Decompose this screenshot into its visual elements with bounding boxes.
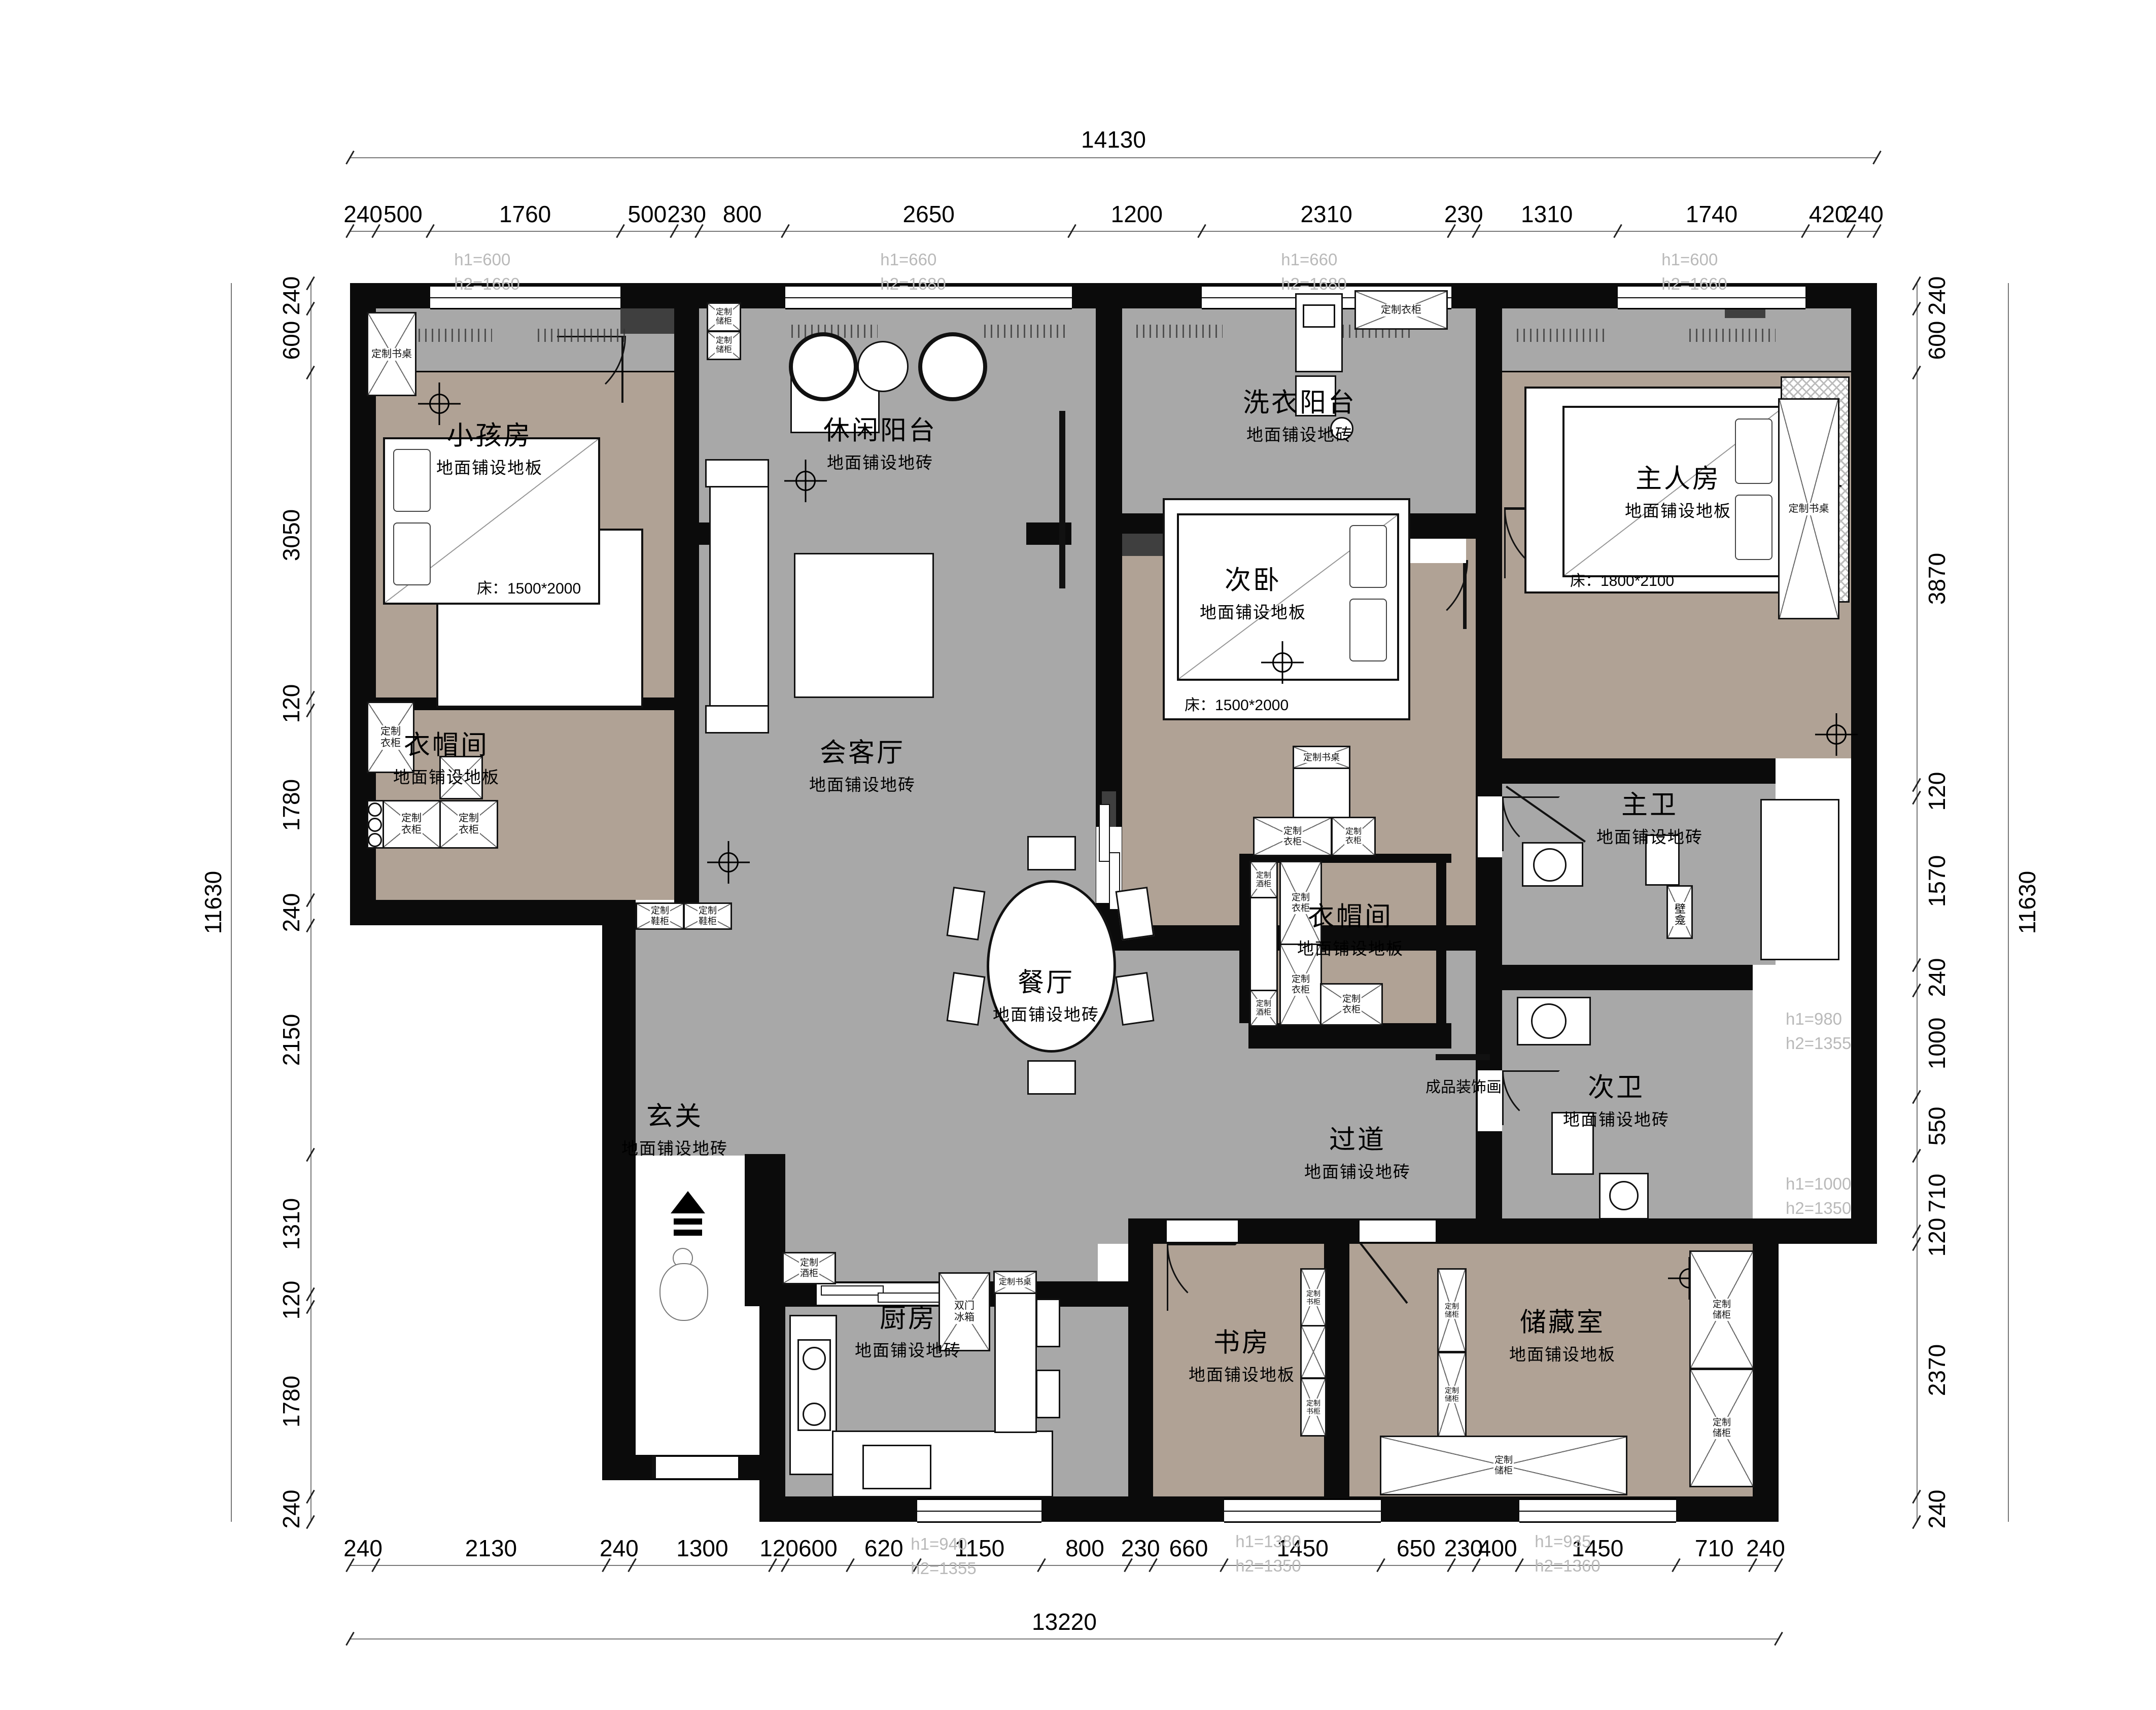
burner-2 <box>803 1403 826 1426</box>
dining-chair-e0 <box>1115 887 1154 940</box>
artwork-frame <box>1436 1054 1490 1060</box>
cabinet-unlabeled-book <box>1300 1325 1327 1379</box>
room-name-cloak1: 衣帽间 <box>393 724 500 762</box>
cabinet-label-c17: 定制衣柜 <box>1380 304 1422 317</box>
room-floor-leisure: 地面铺设地砖 <box>823 449 937 474</box>
cloak1-knob-0 <box>368 802 382 817</box>
dim-line-left-total <box>231 283 232 1522</box>
cabinet-c24: 定制 储柜 <box>1437 1352 1467 1437</box>
sink-kitchen <box>862 1445 931 1489</box>
door-gap-storage <box>1360 1220 1436 1242</box>
room-name-laundry: 洗衣阳台 <box>1243 381 1357 420</box>
dim-right-seg-5: 240 <box>1923 958 1951 997</box>
window-annotation-win_study: h1=1380h2=1350 <box>1235 1529 1301 1578</box>
ann-h1-win_leisure: h1=660 <box>880 248 946 272</box>
cabinet-c10: 定制 酒柜 <box>1249 861 1278 898</box>
radiator-symbol-4 <box>1136 325 1223 338</box>
dim-right-seg-7: 550 <box>1923 1107 1951 1146</box>
room-label-bed2: 次卧地面铺设地板 <box>1200 559 1306 623</box>
burner-1 <box>803 1347 826 1370</box>
ann-h2-win_child: h2=1660 <box>454 272 519 296</box>
dim-top-seg-12: 420 <box>1809 200 1848 228</box>
room-name-bed2: 次卧 <box>1200 559 1306 597</box>
dim-bottom-seg-14: 400 <box>1478 1534 1517 1562</box>
window-annotation-win_leisure: h1=660h2=1680 <box>880 248 946 296</box>
room-floor-kitchen: 地面铺设地砖 <box>855 1337 961 1362</box>
room-label-leisure: 休闲阳台地面铺设地砖 <box>823 409 937 474</box>
ann-h1-win_master: h1=600 <box>1661 248 1727 272</box>
cabinet-c3: 定制 储柜 <box>707 331 741 360</box>
cabinet-label-c5: 定制 衣柜 <box>400 812 423 836</box>
dim-top-seg-10: 1310 <box>1521 200 1573 228</box>
cabinet-c20: 定制书桌 <box>993 1271 1037 1294</box>
crosshair-symbol-6 <box>791 467 820 495</box>
cabinet-c1: 定制书桌 <box>367 312 416 396</box>
wall-kitchen-west <box>759 1306 785 1522</box>
wall-cloak1-bottom <box>350 900 636 925</box>
cabinet-label-c1: 定制书桌 <box>370 348 413 361</box>
dim-right-seg-4: 1570 <box>1923 855 1951 907</box>
dim-left-seg-6: 2150 <box>277 1014 305 1066</box>
dim-top-seg-4: 230 <box>667 200 706 228</box>
wall-right-lower <box>1753 1218 1779 1522</box>
dim-top-seg-11: 1740 <box>1686 200 1737 228</box>
dim-line-bottom-total <box>350 1638 1779 1639</box>
wall-master-south <box>1502 758 1776 784</box>
cloak1-knob-2 <box>368 833 382 847</box>
window-annotation-win_bath1: h1=980h2=1355 <box>1786 1007 1851 1056</box>
cabinet-c8: 定制 鞋柜 <box>683 902 732 930</box>
crosshair-symbol-2 <box>1268 648 1297 677</box>
cabinet-label-c16: 定制 衣柜 <box>1344 827 1363 847</box>
leisure-chair-2 <box>918 332 987 401</box>
dim-left-seg-10: 240 <box>277 1489 305 1528</box>
cabinet-c23: 定制 储柜 <box>1437 1268 1467 1352</box>
window-annotation-win_master: h1=600h2=1660 <box>1661 248 1727 296</box>
pillow-master-1 <box>1735 418 1772 484</box>
leisure-chair-1 <box>789 332 858 401</box>
cabinet-label-c13: 定制 衣柜 <box>1291 973 1311 995</box>
room-label-study: 书房地面铺设地板 <box>1189 1321 1295 1386</box>
room-name-bath2: 次卫 <box>1563 1066 1670 1104</box>
room-floor-master: 地面铺设地板 <box>1625 498 1731 522</box>
dim-bottom-seg-10: 660 <box>1169 1534 1208 1562</box>
dim-left-seg-9: 1780 <box>277 1376 305 1427</box>
dim-bottom-seg-4: 120 <box>759 1534 798 1562</box>
dining-chair-w0 <box>946 887 985 940</box>
radiator-symbol-7 <box>1689 329 1776 342</box>
floor-plan-canvas: 定制书桌定制 储柜定制 储柜定制 衣柜定制 衣柜定制 衣柜定制 鞋柜定制 鞋柜定… <box>0 0 2156 1710</box>
dim-left-total: 11630 <box>199 871 227 934</box>
door-leaf-bed2 <box>1463 560 1465 629</box>
dim-right-seg-6: 1000 <box>1923 1018 1951 1069</box>
dim-top-seg-2: 1760 <box>499 200 551 228</box>
chair-study-2 <box>1036 1370 1060 1418</box>
room-floor-dining: 地面铺设地砖 <box>993 1001 1099 1026</box>
bed-size-note-master: 床：1800*2100 <box>1570 568 1674 590</box>
dim-bottom-seg-12: 650 <box>1397 1534 1436 1562</box>
cabinet-label-c6: 定制 衣柜 <box>458 812 480 836</box>
room-floor-corridor: 地面铺设地砖 <box>1304 1159 1411 1183</box>
wall-right-upper <box>1851 283 1877 1244</box>
win-kitchen <box>917 1498 1041 1523</box>
dim-top-seg-0: 240 <box>343 200 382 228</box>
door-gap-study <box>1167 1220 1238 1242</box>
cabinet-label-c24: 定制 储柜 <box>1444 1386 1460 1403</box>
cabinet-c18: 定制书桌 <box>1293 746 1350 769</box>
dim-top-seg-3: 500 <box>628 200 667 228</box>
cabinet-c15: 定制 衣柜 <box>1253 817 1332 856</box>
dim-bottom-seg-5: 600 <box>798 1534 838 1562</box>
cabinet-label-c26: 定制 储柜 <box>1712 1417 1732 1439</box>
room-label-cloak2: 衣帽间地面铺设地板 <box>1297 895 1404 960</box>
wall-cloak2-south <box>1248 1023 1451 1049</box>
dim-right-seg-10: 2370 <box>1923 1344 1951 1396</box>
cabinet-label-c14: 定制 衣柜 <box>1341 993 1362 1015</box>
room-label-master: 主人房地面铺设地板 <box>1625 458 1731 522</box>
window-annotation-win_bath2: h1=1000h2=1350 <box>1786 1172 1851 1220</box>
dim-top-seg-5: 800 <box>723 200 762 228</box>
wall-child-east <box>674 283 699 925</box>
chair-study-1 <box>1036 1299 1060 1347</box>
pillow-master-2 <box>1735 495 1772 560</box>
person-figure-entry <box>659 1248 706 1319</box>
tv-living <box>1059 411 1065 588</box>
cabinet-label-c3: 定制 储柜 <box>715 336 733 356</box>
coffee-table-living <box>794 553 934 698</box>
ann-h1-win_child: h1=600 <box>454 248 519 272</box>
room-name-storage: 储藏室 <box>1509 1301 1616 1339</box>
cabinet-c27: 定制 储柜 <box>1380 1436 1627 1495</box>
ann-h2-win_study: h2=1350 <box>1235 1554 1301 1578</box>
room-floor-cloak2: 地面铺设地板 <box>1297 935 1404 960</box>
dim-line-top-total <box>350 157 1877 158</box>
room-floor-child: 地面铺设地板 <box>436 455 543 479</box>
dim-bottom-seg-8: 800 <box>1065 1534 1104 1562</box>
cabinet-label-c27: 定制 储柜 <box>1493 1454 1514 1476</box>
room-name-child: 小孩房 <box>436 414 543 452</box>
cabinet-c19: 定制书桌 <box>1778 398 1839 619</box>
room-label-bath2: 次卫地面铺设地砖 <box>1563 1066 1670 1131</box>
entry-arrow-bar2 <box>674 1230 702 1236</box>
dim-bottom-seg-17: 240 <box>1746 1534 1785 1562</box>
room-floor-laundry: 地面铺设地砖 <box>1243 422 1357 446</box>
crosshair-symbol-4 <box>1822 720 1851 749</box>
dim-top-seg-7: 1200 <box>1111 200 1163 228</box>
window-annotation-win_laundry: h1=660h2=1680 <box>1281 248 1346 296</box>
pillow-child-2 <box>393 522 431 585</box>
cabinet-c2: 定制 储柜 <box>707 302 741 332</box>
dim-left-seg-0: 240 <box>277 276 305 316</box>
wall-kitchen-study <box>1128 1244 1153 1522</box>
room-label-cloak1: 衣帽间地面铺设地板 <box>393 724 500 788</box>
dim-bottom-seg-3: 1300 <box>676 1534 728 1562</box>
room-label-child: 小孩房地面铺设地板 <box>436 414 543 479</box>
cabinet-label-c19: 定制书桌 <box>1788 503 1830 515</box>
wall-bath1-south <box>1502 965 1753 990</box>
cabinet-label-c8: 定制 鞋柜 <box>698 905 718 927</box>
cabinet-c9: 定制 酒柜 <box>782 1252 836 1284</box>
dim-top-total: 14130 <box>1081 126 1146 153</box>
room-floor-hall: 地面铺设地砖 <box>621 1135 728 1160</box>
dim-right-seg-8: 710 <box>1923 1174 1951 1213</box>
pillow-bed2-2 <box>1349 599 1387 661</box>
entry-direction-arrow <box>671 1191 705 1213</box>
dining-chair-n <box>1027 836 1076 870</box>
sofa-living <box>709 482 769 708</box>
dim-right-seg-0: 240 <box>1923 276 1951 316</box>
sink-bowl-bath2 <box>1531 1003 1567 1039</box>
ann-h2-win_kitchen: h2=1355 <box>911 1556 976 1581</box>
door-leaf-child <box>621 336 623 403</box>
wall-hall-west <box>602 900 636 1480</box>
cabinet-label-c20: 定制书桌 <box>998 1277 1032 1287</box>
room-name-corridor: 过道 <box>1304 1119 1411 1157</box>
dim-left-seg-4: 1780 <box>277 779 305 831</box>
dim-line-right-segments <box>1917 283 1918 1522</box>
window-annotation-win_kitchen: h1=940h2=1355 <box>911 1532 976 1581</box>
cloak1-knob-1 <box>368 818 382 832</box>
ann-h2-win_laundry: h2=1680 <box>1281 272 1346 296</box>
cabinet-c21: 定制 书柜 <box>1300 1268 1327 1327</box>
crosshair-symbol-1 <box>714 848 743 877</box>
dim-bottom-seg-16: 710 <box>1695 1534 1734 1562</box>
cabinet-c6: 定制 衣柜 <box>439 800 498 849</box>
ann-h1-win_bath2: h1=1000 <box>1786 1172 1851 1196</box>
sink-bowl-bath1 <box>1533 848 1567 882</box>
bathtub-bath1 <box>1760 799 1839 960</box>
cabinet-c7: 定制 鞋柜 <box>636 902 684 930</box>
dim-line-right-total <box>2008 283 2009 1522</box>
dim-bottom-seg-1: 2130 <box>465 1534 517 1562</box>
entry-arrow-bar1 <box>674 1218 702 1225</box>
ann-h1-win_bath1: h1=980 <box>1786 1007 1851 1031</box>
room-floor-cloak1: 地面铺设地板 <box>393 764 500 788</box>
dim-left-seg-5: 240 <box>277 893 305 932</box>
dim-bottom-seg-0: 240 <box>343 1534 382 1562</box>
room-floor-bath1: 地面铺设地砖 <box>1596 824 1703 848</box>
cabinet-label-c15: 定制 衣柜 <box>1282 825 1303 847</box>
cabinet-c14: 定制 衣柜 <box>1320 983 1383 1026</box>
room-name-cloak2: 衣帽间 <box>1297 895 1404 933</box>
cabinet-c16: 定制 衣柜 <box>1331 817 1376 856</box>
room-floor-living: 地面铺设地砖 <box>809 772 916 796</box>
dim-left-seg-7: 1310 <box>277 1198 305 1250</box>
dim-right-seg-1: 600 <box>1923 321 1951 360</box>
artwork-label: 成品装饰画 <box>1425 1074 1502 1097</box>
door-gap-entry <box>652 1457 738 1478</box>
slider-kitchen-1 <box>821 1285 884 1296</box>
ann-h1-win_storage: h1=935 <box>1535 1529 1600 1554</box>
radiator-symbol-1 <box>538 329 629 342</box>
dim-top-seg-9: 230 <box>1444 200 1483 228</box>
sofa-side-table-1 <box>705 459 769 487</box>
room-label-living: 会客厅地面铺设地砖 <box>809 731 916 796</box>
ann-h2-win_storage: h2=1360 <box>1535 1554 1600 1578</box>
cabinet-c25: 定制 储柜 <box>1689 1250 1754 1369</box>
dim-left-seg-2: 3050 <box>277 509 305 561</box>
dining-chair-s <box>1027 1060 1076 1095</box>
room-name-living: 会客厅 <box>809 731 916 770</box>
pillow-bed2-1 <box>1349 525 1387 588</box>
washer-drum-bath2 <box>1609 1181 1639 1210</box>
sofa-side-table-2 <box>705 705 769 734</box>
room-label-hall: 玄关地面铺设地砖 <box>621 1095 728 1160</box>
ann-h2-win_bath2: h2=1350 <box>1786 1196 1851 1220</box>
dining-chair-w1 <box>946 972 985 1026</box>
cabinet-c11: 定制 酒柜 <box>1249 989 1278 1027</box>
cloak2-shelf <box>1249 897 1278 991</box>
cabinet-c26: 定制 储柜 <box>1689 1369 1754 1487</box>
dim-left-seg-1: 600 <box>277 321 305 360</box>
cabinet-label-c25: 定制 储柜 <box>1712 1299 1732 1320</box>
cabinet-label-c23: 定制 储柜 <box>1444 1302 1460 1319</box>
door-gap-bath1 <box>1478 796 1502 857</box>
dim-bottom-seg-2: 240 <box>600 1534 639 1562</box>
cabinet-label-c2: 定制 储柜 <box>715 307 733 327</box>
room-label-kitchen: 厨房地面铺设地砖 <box>855 1297 961 1362</box>
entry-jamb <box>652 1455 656 1478</box>
room-label-laundry: 洗衣阳台地面铺设地砖 <box>1243 381 1357 446</box>
room-name-dining: 餐厅 <box>993 961 1099 999</box>
win-study <box>1224 1498 1381 1523</box>
cabinet-label-c10: 定制 酒柜 <box>1255 870 1272 889</box>
room-name-kitchen: 厨房 <box>855 1297 961 1335</box>
ann-h1-win_kitchen: h1=940 <box>911 1532 976 1556</box>
room-label-dining: 餐厅地面铺设地砖 <box>993 961 1099 1026</box>
dim-left-seg-3: 120 <box>277 684 305 723</box>
ann-h1-win_laundry: h1=660 <box>1281 248 1346 272</box>
dim-left-seg-8: 120 <box>277 1281 305 1320</box>
ann-h2-win_bath1: h2=1355 <box>1786 1031 1851 1056</box>
wall-cloak2-east <box>1436 854 1446 1023</box>
dim-bottom-seg-6: 620 <box>864 1534 903 1562</box>
dim-top-seg-1: 500 <box>384 200 423 228</box>
cabinet-c17: 定制衣柜 <box>1354 290 1448 330</box>
ann-h2-win_master: h2=1660 <box>1661 272 1727 296</box>
wall-hall-step <box>745 1154 785 1306</box>
cabinet-c5: 定制 衣柜 <box>382 800 441 849</box>
dim-right-seg-11: 240 <box>1923 1489 1951 1528</box>
room-name-master: 主人房 <box>1625 458 1731 496</box>
cabinet-label-c18: 定制书桌 <box>1302 752 1341 763</box>
dim-right-seg-9: 120 <box>1923 1218 1951 1257</box>
ann-h2-win_leisure: h2=1680 <box>880 272 946 296</box>
room-name-study: 书房 <box>1189 1321 1295 1359</box>
sill-master-bay <box>1502 371 1851 372</box>
cabinet-label-c7: 定制 鞋柜 <box>650 905 670 927</box>
room-floor-storage: 地面铺设地板 <box>1509 1341 1616 1366</box>
dim-right-total: 11630 <box>2013 871 2041 934</box>
win-storage <box>1519 1498 1676 1523</box>
dim-right-seg-2: 3870 <box>1923 553 1951 605</box>
window-annotation-win_storage: h1=935h2=1360 <box>1535 1529 1600 1578</box>
room-label-storage: 储藏室地面铺设地板 <box>1509 1301 1616 1366</box>
ann-h1-win_study: h1=1380 <box>1235 1529 1301 1554</box>
dim-top-seg-13: 240 <box>1845 200 1884 228</box>
cabinet-label-c22: 定制 书柜 <box>1305 1399 1322 1416</box>
cabinet-label-c21: 定制 书柜 <box>1305 1289 1322 1306</box>
dim-bottom-seg-13: 230 <box>1444 1534 1483 1562</box>
room-name-hall: 玄关 <box>621 1095 728 1133</box>
bed-size-note-bed2: 床：1500*2000 <box>1185 692 1289 715</box>
room-floor-bed2: 地面铺设地板 <box>1200 599 1306 623</box>
room-floor-study: 地面铺设地板 <box>1189 1362 1295 1386</box>
leisure-table <box>857 341 909 392</box>
sill-child-bay <box>376 371 674 372</box>
dim-top-seg-8: 2310 <box>1300 200 1352 228</box>
cabinet-label-c9: 定制 酒柜 <box>799 1257 819 1279</box>
niche-label: 壁龛 <box>1670 902 1688 926</box>
bed-size-note-child: 床：1500*2000 <box>477 576 581 598</box>
cabinet-c22: 定制 书柜 <box>1300 1378 1327 1437</box>
washer-panel <box>1303 304 1335 328</box>
cabinet-label-c11: 定制 酒柜 <box>1255 999 1272 1018</box>
room-name-bath1: 主卫 <box>1596 784 1703 822</box>
wall-cloak2-west <box>1239 854 1249 1023</box>
pillow-child-1 <box>393 449 431 512</box>
dim-bottom-seg-9: 230 <box>1121 1534 1160 1562</box>
dim-line-top-segments <box>350 231 1877 232</box>
dim-top-seg-6: 2650 <box>903 200 955 228</box>
room-floor-bath2: 地面铺设地砖 <box>1563 1106 1670 1131</box>
window-annotation-win_child: h1=600h2=1660 <box>454 248 519 296</box>
desk-strip-study <box>994 1272 1037 1433</box>
dim-right-seg-3: 120 <box>1923 772 1951 811</box>
slider-panel-1 <box>1099 804 1110 862</box>
dim-line-left-segments <box>310 283 311 1522</box>
room-name-leisure: 休闲阳台 <box>823 409 937 447</box>
dim-bottom-total: 13220 <box>1032 1608 1097 1635</box>
room-label-corridor: 过道地面铺设地砖 <box>1304 1119 1411 1183</box>
room-label-bath1: 主卫地面铺设地砖 <box>1596 784 1703 848</box>
dining-chair-e1 <box>1115 972 1154 1026</box>
wall-study-storage <box>1324 1244 1349 1522</box>
radiator-symbol-3 <box>984 325 1065 338</box>
radiator-symbol-6 <box>1517 329 1608 342</box>
